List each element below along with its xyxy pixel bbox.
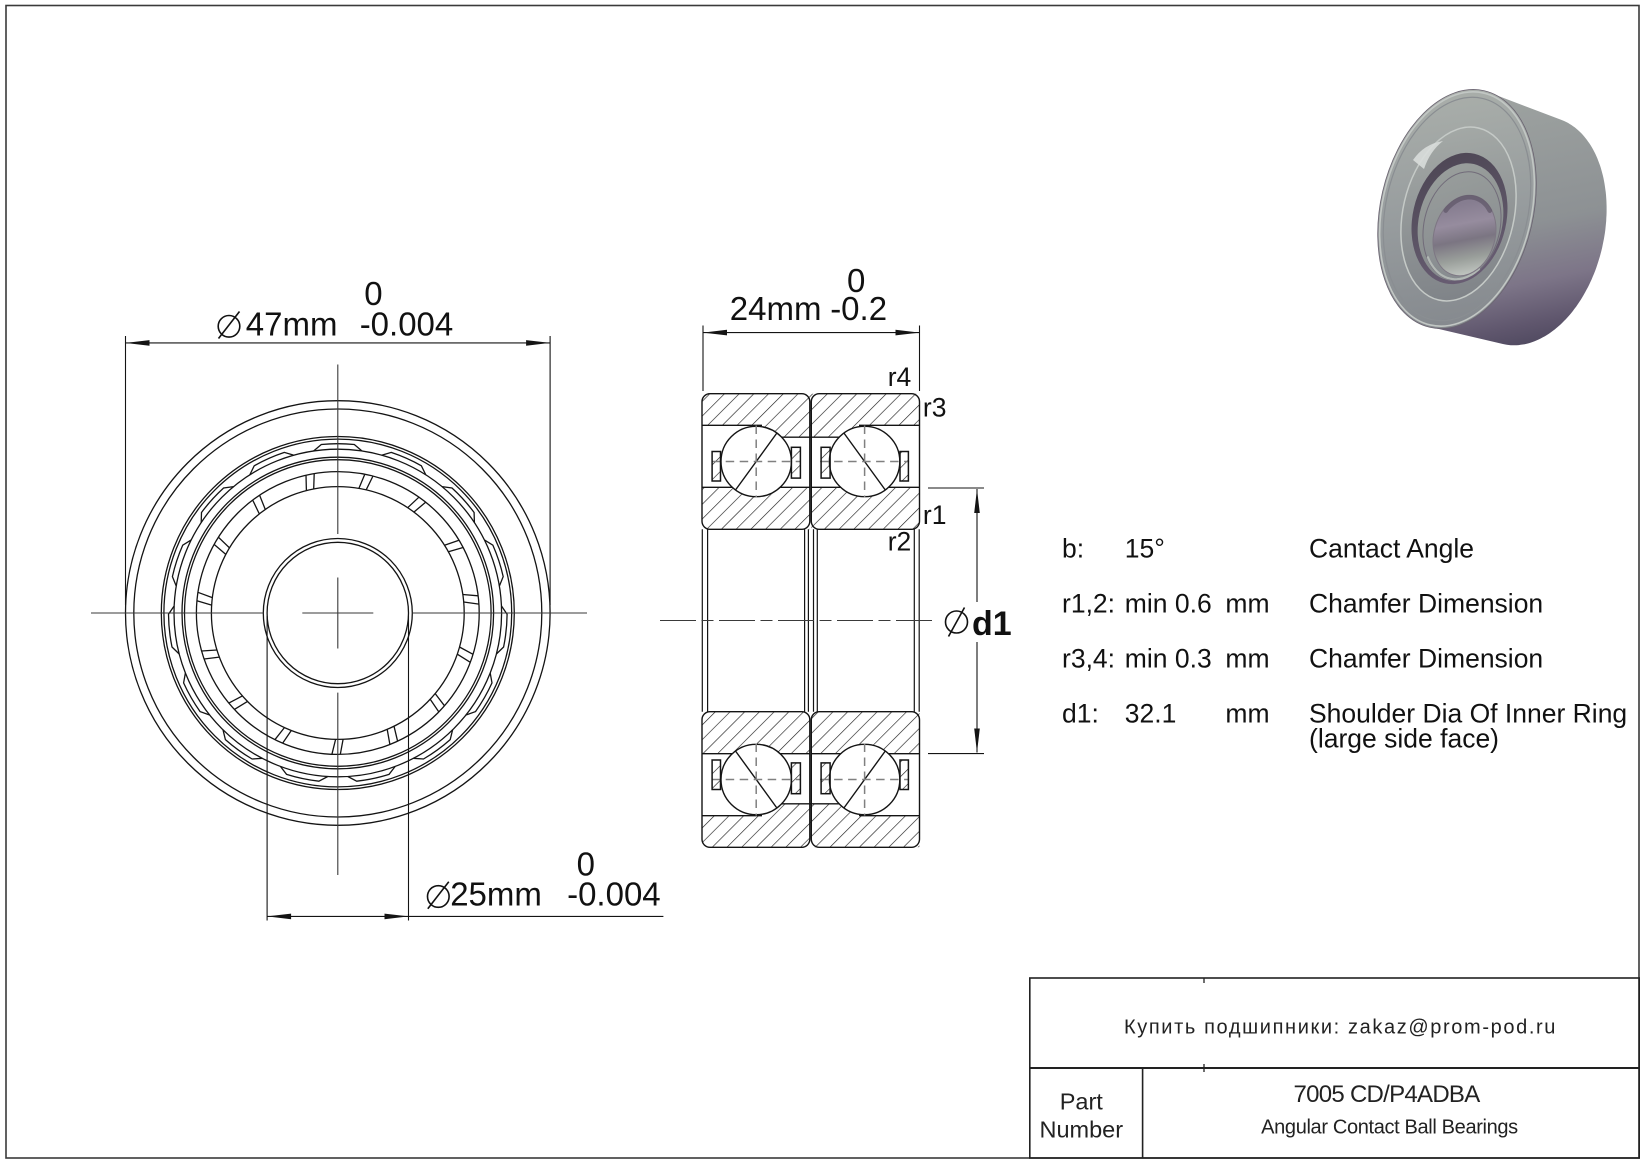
svg-text:r4: r4 (888, 362, 912, 392)
svg-text:d1: d1 (972, 605, 1012, 643)
svg-text:r3: r3 (923, 393, 947, 423)
svg-text:0: 0 (577, 845, 595, 882)
svg-text:r1,2:: r1,2: (1062, 588, 1115, 618)
svg-text:min 0.3: min 0.3 (1125, 644, 1212, 674)
svg-text:Chamfer Dimension: Chamfer Dimension (1309, 588, 1543, 618)
svg-text:25mm: 25mm (450, 875, 542, 912)
svg-text:Chamfer Dimension: Chamfer Dimension (1309, 644, 1543, 674)
svg-text:0: 0 (847, 262, 865, 299)
svg-text:32.1: 32.1 (1125, 699, 1177, 729)
svg-text:24mm: 24mm (730, 290, 822, 327)
svg-text:mm: mm (1225, 699, 1269, 729)
svg-text:r2: r2 (888, 527, 912, 557)
svg-text:47mm: 47mm (246, 305, 338, 342)
svg-text:15°: 15° (1125, 533, 1165, 563)
svg-text:Part: Part (1060, 1088, 1104, 1114)
svg-text:r1: r1 (923, 500, 947, 530)
svg-text:mm: mm (1225, 588, 1269, 618)
svg-text:b:: b: (1062, 533, 1084, 563)
svg-text:Angular Contact Ball Bearings: Angular Contact Ball Bearings (1261, 1117, 1518, 1139)
svg-text:Cantact Angle: Cantact Angle (1309, 533, 1474, 563)
svg-text:7005 CD/P4ADBA: 7005 CD/P4ADBA (1293, 1081, 1480, 1108)
svg-text:d1:: d1: (1062, 699, 1099, 729)
svg-text:0: 0 (364, 275, 382, 312)
svg-text:min 0.6: min 0.6 (1125, 588, 1212, 618)
svg-text:Купить подшипники: zakaz@prom-: Купить подшипники: zakaz@prom-pod.ru (1124, 1017, 1557, 1039)
svg-text:r3,4:: r3,4: (1062, 644, 1115, 674)
svg-text:mm: mm (1225, 644, 1269, 674)
svg-text:Number: Number (1040, 1116, 1124, 1142)
svg-text:(large side face): (large side face) (1309, 723, 1499, 753)
